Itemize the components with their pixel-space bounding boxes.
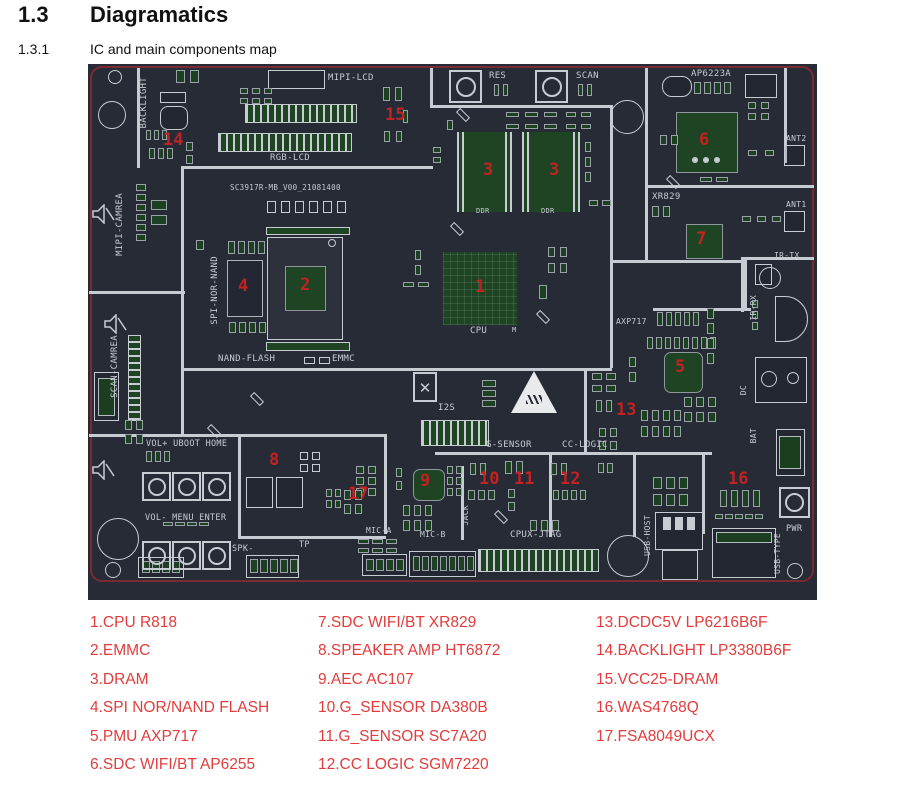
tact-button-cap: [785, 493, 804, 512]
tact-button: [779, 487, 810, 518]
smd-pad: [358, 548, 369, 553]
smd-pad: [757, 216, 766, 222]
silk-label: I2S: [438, 404, 455, 413]
smd-pad: [606, 400, 612, 412]
smd-pad: [694, 82, 701, 94]
metal-pad: [675, 517, 683, 530]
smd-pad: [425, 505, 432, 516]
smd-pad: [560, 263, 567, 273]
smd-pad: [708, 412, 716, 422]
smd-pad: [186, 142, 193, 151]
smd-pad: [581, 112, 591, 117]
smd-pad: [653, 477, 662, 489]
smd-pad: [228, 241, 235, 254]
smd-pad: [704, 82, 711, 94]
silk-label: VOL+ UBOOT HOME: [146, 440, 227, 449]
silk-divider-line: [430, 105, 612, 108]
smd-pad: [280, 559, 288, 573]
legend-item: 4.SPI NOR/NAND FLASH: [90, 694, 269, 722]
smd-pad: [372, 539, 383, 544]
component-outline: [160, 106, 188, 130]
ic-marker-3: 3: [483, 162, 493, 179]
hole-circle: [761, 371, 777, 387]
smd-pad: [248, 241, 255, 254]
hole-circle: [787, 372, 799, 384]
hole-circle: [787, 563, 803, 579]
smd-pad: [731, 490, 738, 507]
silk-divider-line: [430, 68, 433, 107]
smd-pad: [606, 385, 616, 392]
legend-item: 1.CPU R818: [90, 609, 269, 637]
smd-pad: [765, 150, 774, 156]
smd-pad: [692, 337, 698, 349]
smd-pad: [146, 451, 152, 462]
smd-pad: [748, 150, 757, 156]
smd-pad: [164, 451, 170, 462]
smd-pad: [735, 514, 743, 519]
speaker-mute-icon: [92, 460, 116, 480]
smd-pad: [748, 113, 756, 120]
component-outline: [784, 145, 805, 166]
hole-circle: [610, 100, 644, 134]
triangle-mark: [526, 395, 542, 404]
silk-label: G-SENSOR: [486, 441, 532, 450]
silk-divider-line: [238, 437, 241, 538]
ic-marker-12: 12: [560, 471, 580, 488]
silk-label: AXP717: [616, 318, 647, 326]
smd-pad: [440, 556, 447, 571]
smd-pad: [674, 426, 681, 437]
smd-pad: [433, 147, 441, 153]
silk-label: MIPI-CAMREA: [116, 193, 125, 256]
smd-pad: [326, 500, 332, 508]
smd-pad: [196, 240, 204, 250]
silk-label: IR-RX: [750, 295, 758, 321]
weee-bin-icon: ✕: [413, 372, 437, 402]
smd-pad: [458, 556, 465, 571]
component-outline: [745, 74, 777, 98]
smd-pad: [675, 312, 681, 326]
smd-pad: [259, 322, 266, 333]
silk-label: USB-HOST: [644, 515, 652, 556]
smd-pad: [136, 214, 146, 221]
silk-divider-line: [384, 434, 387, 534]
smd-pad: [270, 559, 278, 573]
smd-pad: [696, 397, 704, 407]
section-title: Diagramatics: [90, 2, 228, 28]
connector-strip: [128, 335, 141, 421]
smd-pad: [250, 559, 258, 573]
smd-pad: [384, 131, 390, 142]
outline-pad: [312, 452, 320, 460]
smd-pad: [386, 548, 397, 553]
connector-strip: [218, 133, 352, 152]
smd-pad: [761, 113, 769, 120]
smd-pad: [335, 500, 341, 508]
bin-cross: ✕: [417, 380, 433, 396]
outline-pad: [300, 464, 308, 472]
component-outline: [276, 477, 303, 508]
metal-pad: [663, 517, 671, 530]
smd-pad: [136, 184, 146, 191]
silk-divider-line: [653, 308, 751, 311]
ic-marker-17: 17: [348, 486, 368, 503]
smd-pad: [396, 559, 404, 571]
speaker-mute-icon: [104, 314, 128, 334]
smd-pad: [652, 426, 659, 437]
smd-pad: [482, 390, 496, 397]
subsection-number: 1.3.1: [18, 41, 90, 57]
smd-pad: [506, 124, 519, 129]
silk-label: SCAN-CAMREA: [111, 335, 120, 398]
silk-label: AP6223A: [691, 70, 731, 79]
silk-label: BAT: [750, 428, 758, 443]
silk-label: VOL- MENU ENTER: [145, 514, 226, 523]
smd-pad: [578, 84, 583, 96]
smd-pad: [679, 494, 688, 506]
tact-button-cap: [148, 547, 166, 565]
smd-pad: [548, 247, 555, 257]
smd-pad: [125, 434, 132, 444]
silk-label: DDR: [476, 208, 490, 215]
smd-pad: [663, 426, 670, 437]
smd-pad: [136, 420, 143, 430]
tact-button-cap: [148, 478, 166, 496]
smd-pad: [772, 216, 781, 222]
legend-item: 6.SDC WIFI/BT AP6255: [90, 751, 269, 779]
smd-pad: [252, 98, 260, 104]
section-heading: 1.3 Diagramatics: [18, 2, 228, 28]
legend-item: 7.SDC WIFI/BT XR829: [318, 609, 500, 637]
metal-pad: [687, 517, 695, 530]
smd-pad: [155, 451, 161, 462]
smd-pad: [356, 466, 364, 474]
ic-marker-1: 1: [475, 279, 485, 296]
smd-pad: [720, 490, 727, 507]
component-outline: [784, 211, 805, 232]
smd-pad: [403, 505, 410, 516]
smd-pad: [470, 463, 476, 475]
smd-pad: [468, 490, 475, 500]
hole-circle: [703, 157, 709, 163]
silk-label: SPK-: [232, 545, 254, 554]
smd-pad: [666, 494, 675, 506]
outline-pad: [304, 357, 315, 364]
smd-pad: [629, 372, 636, 382]
smd-pad: [136, 194, 146, 201]
smd-pad: [229, 322, 236, 333]
smd-pad: [684, 412, 692, 422]
legend-item: 8.SPEAKER AMP HT6872: [318, 637, 500, 665]
smd-pad: [386, 539, 397, 544]
tact-button: [449, 70, 482, 103]
legend-column-2: 7.SDC WIFI/BT XR8298.SPEAKER AMP HT68729…: [318, 609, 500, 779]
hole-circle: [714, 157, 720, 163]
smd-pad: [415, 250, 421, 260]
smd-pad: [592, 373, 602, 380]
smd-pad: [755, 514, 763, 519]
smd-pad: [125, 420, 132, 430]
smd-pad: [660, 135, 667, 145]
silk-label: JACK: [462, 505, 470, 525]
component-outline: [712, 528, 776, 578]
smd-pad: [674, 337, 680, 349]
smd-pad: [679, 477, 688, 489]
silk-label: CC-LOGIC: [562, 441, 608, 450]
legend-column-3: 13.DCDC5V LP6216B6F14.BACKLIGHT LP3380B6…: [596, 609, 791, 751]
legend-column-1: 1.CPU R8182.EMMC3.DRAM4.SPI NOR/NAND FLA…: [90, 609, 269, 779]
legend-item: 11.G_SENSOR SC7A20: [318, 723, 500, 751]
smd-pad: [403, 520, 410, 531]
smd-pad: [136, 234, 146, 241]
tact-button: [142, 472, 171, 501]
ic-marker-6: 6: [699, 132, 709, 149]
smd-pad: [753, 490, 760, 507]
connector-strip: [421, 420, 489, 446]
smd-pad: [488, 490, 495, 500]
outline-pad: [300, 452, 308, 460]
smd-pad: [372, 548, 383, 553]
smd-pad: [239, 322, 246, 333]
silk-label: PWR: [786, 525, 802, 534]
smd-pad: [539, 285, 547, 299]
smd-pad: [748, 102, 756, 109]
legend-item: 14.BACKLIGHT LP3380B6F: [596, 637, 791, 665]
legend-item: 12.CC LOGIC SGM7220: [318, 751, 500, 779]
smd-pad: [456, 477, 462, 485]
smd-pad: [745, 514, 753, 519]
smd-pad: [264, 88, 272, 94]
hole-circle: [97, 518, 139, 560]
smd-pad: [566, 124, 576, 129]
smd-pad: [587, 84, 592, 96]
hole-circle: [759, 267, 781, 289]
ic-marker-3: 3: [549, 162, 559, 179]
section-number: 1.3: [18, 2, 90, 28]
silk-label: RGB-LCD: [270, 154, 310, 163]
smd-pad: [326, 489, 332, 497]
document-page: 1.3 Diagramatics 1.3.1 IC and main compo…: [0, 0, 908, 790]
smd-pad: [665, 337, 671, 349]
smd-pad: [383, 87, 390, 101]
smd-pad: [525, 112, 538, 117]
ic-marker-16: 16: [728, 471, 748, 488]
silk-label: SCAN: [576, 72, 599, 81]
smd-pad: [368, 477, 376, 485]
smd-pad: [249, 322, 256, 333]
smd-pad: [238, 241, 245, 254]
smd-pad: [403, 282, 414, 287]
smd-pad: [647, 337, 653, 349]
smd-pad: [260, 559, 268, 573]
component-outline: [160, 92, 186, 103]
smd-pad: [358, 539, 369, 544]
smd-pad: [666, 312, 672, 326]
smd-pad: [508, 502, 515, 511]
silk-divider-line: [612, 260, 744, 263]
connector-strip: [266, 342, 350, 351]
smd-pad: [666, 477, 675, 489]
outline-pad: [295, 201, 304, 213]
smd-pad: [599, 428, 606, 437]
smd-pad: [585, 142, 591, 152]
tact-button-cap: [542, 77, 562, 97]
smd-pad: [610, 441, 617, 450]
smd-pad: [252, 88, 260, 94]
smd-pad: [149, 148, 155, 159]
ic-marker-13: 13: [616, 402, 636, 419]
smd-pad: [396, 481, 402, 490]
smd-pad: [684, 312, 690, 326]
esd-warning-triangle-icon: [511, 371, 557, 413]
smd-pad: [422, 556, 429, 571]
smd-pad: [240, 98, 248, 104]
legend-item: 17.FSA8049UCX: [596, 723, 791, 751]
silk-label: ANT2: [786, 135, 806, 143]
hole-circle: [105, 562, 121, 578]
component-outline: [662, 76, 692, 97]
silk-label: ANT1: [786, 201, 806, 209]
smd-pad: [146, 130, 151, 140]
smd-pad: [415, 265, 421, 275]
smd-pad: [652, 206, 659, 217]
smd-pad: [456, 488, 462, 496]
ic-marker-11: 11: [514, 471, 534, 488]
smd-pad: [478, 490, 485, 500]
pcb-component-map-figure: MIPI-LCDRGB-LCDSC3917R-MB_V00_21081400BA…: [88, 64, 817, 600]
smd-pad: [752, 322, 758, 330]
subsection-title: IC and main components map: [90, 41, 277, 57]
tact-button-cap: [456, 77, 476, 97]
smd-pad: [447, 120, 453, 130]
smd-pad: [596, 400, 602, 412]
smd-pad: [707, 338, 714, 349]
ic-marker-7: 7: [696, 231, 706, 248]
smd-pad: [585, 157, 591, 167]
smd-pad: [610, 428, 617, 437]
component-outline: [662, 550, 698, 580]
subsection-heading: 1.3.1 IC and main components map: [18, 41, 277, 57]
smd-pad: [700, 177, 712, 182]
legend-item: 16.WAS4768Q: [596, 694, 791, 722]
connector-strip: [266, 227, 350, 235]
smd-pad: [544, 124, 557, 129]
smd-pad: [656, 337, 662, 349]
silk-label: IR-TX: [774, 252, 800, 260]
silk-divider-line: [633, 452, 636, 537]
silk-label: BACKLIGHT: [140, 77, 149, 128]
smd-pad: [176, 70, 185, 83]
hole-circle: [328, 239, 336, 247]
smd-pad: [151, 215, 167, 225]
connector-strip: [245, 104, 357, 123]
silk-label: SC3917R-MB_V00_21081400: [230, 184, 341, 192]
smd-pad: [716, 177, 728, 182]
smd-pad: [431, 556, 438, 571]
smd-pad: [606, 373, 616, 380]
smd-pad: [433, 157, 441, 163]
smd-pad: [592, 385, 602, 392]
smd-pad: [447, 466, 453, 474]
smd-pad: [707, 323, 714, 334]
hole-circle: [98, 101, 126, 129]
smd-pad: [482, 380, 496, 387]
silk-label: TP: [299, 541, 310, 550]
smd-pad: [562, 490, 568, 500]
smd-pad: [571, 490, 577, 500]
smd-pad: [505, 461, 512, 474]
smd-pad: [418, 282, 429, 287]
smd-pad: [674, 410, 681, 421]
silk-label: EMMC: [332, 355, 355, 364]
smd-pad: [395, 87, 402, 101]
ic-marker-10: 10: [479, 471, 499, 488]
legend-item: 5.PMU AXP717: [90, 723, 269, 751]
smd-pad: [376, 559, 384, 571]
smd-pad: [683, 337, 689, 349]
smd-pad: [447, 488, 453, 496]
smd-pad: [467, 556, 474, 571]
smd-pad: [724, 82, 731, 94]
smd-pad: [742, 490, 749, 507]
smd-pad: [602, 200, 611, 206]
legend-item: 15.VCC25-DRAM: [596, 666, 791, 694]
smd-pad: [366, 559, 374, 571]
smd-pad: [553, 490, 559, 500]
smd-pad: [607, 463, 613, 473]
smd-pad: [368, 488, 376, 496]
component-outline: [246, 477, 273, 508]
smd-pad: [598, 463, 604, 473]
smd-pad: [708, 397, 716, 407]
smd-pad: [671, 135, 678, 145]
smd-pad: [355, 504, 362, 514]
silk-divider-line: [181, 166, 433, 169]
ic-marker-5: 5: [675, 359, 685, 376]
connector-strip: [478, 549, 599, 572]
smd-pad: [715, 514, 723, 519]
ic-marker-2: 2: [300, 277, 310, 294]
legend-item: 13.DCDC5V LP6216B6F: [596, 609, 791, 637]
smd-pad: [151, 200, 167, 210]
silk-divider-line: [435, 452, 712, 455]
tact-button: [202, 541, 231, 570]
smd-pad: [629, 357, 636, 367]
silk-label: NAND-FLASH: [218, 355, 275, 364]
outline-pad: [309, 201, 318, 213]
smd-pad: [447, 477, 453, 485]
hole-circle: [692, 157, 698, 163]
outline-pad: [312, 464, 320, 472]
smd-pad: [663, 410, 670, 421]
smd-pad: [240, 88, 248, 94]
smd-pad: [413, 556, 420, 571]
ic-marker-9: 9: [420, 473, 430, 490]
smd-pad: [525, 124, 538, 129]
smd-pad: [396, 468, 402, 477]
outline-pad: [337, 201, 346, 213]
smd-pad: [186, 155, 193, 164]
silk-divider-line: [610, 105, 613, 368]
smd-pad: [136, 224, 146, 231]
component-outline: [268, 70, 325, 89]
outline-pad: [267, 201, 276, 213]
silk-label: RES: [489, 72, 506, 81]
smd-pad: [652, 410, 659, 421]
legend-item: 9.AEC AC107: [318, 666, 500, 694]
ic-marker-15: 15: [385, 107, 405, 124]
outline-pad: [319, 357, 330, 364]
